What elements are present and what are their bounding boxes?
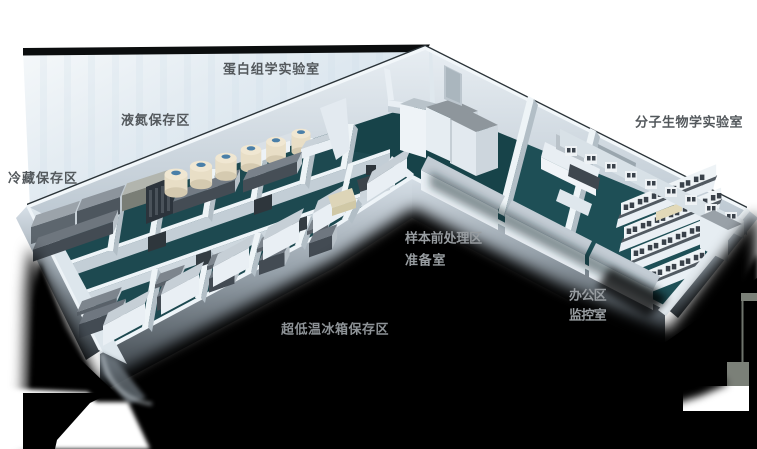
svg-text:样本前处理区: 样本前处理区 bbox=[405, 231, 482, 246]
svg-text:超低温冰箱保存区: 超低温冰箱保存区 bbox=[281, 322, 389, 337]
svg-text:冷藏保存区: 冷藏保存区 bbox=[8, 171, 78, 186]
svg-text:蛋白组学实验室: 蛋白组学实验室 bbox=[223, 62, 320, 77]
svg-text:办公区: 办公区 bbox=[569, 288, 607, 303]
svg-text:监控室: 监控室 bbox=[569, 308, 607, 323]
svg-text:准备室: 准备室 bbox=[405, 253, 446, 268]
svg-text:分子生物学实验室: 分子生物学实验室 bbox=[635, 115, 743, 130]
svg-text:液氮保存区: 液氮保存区 bbox=[121, 113, 190, 128]
